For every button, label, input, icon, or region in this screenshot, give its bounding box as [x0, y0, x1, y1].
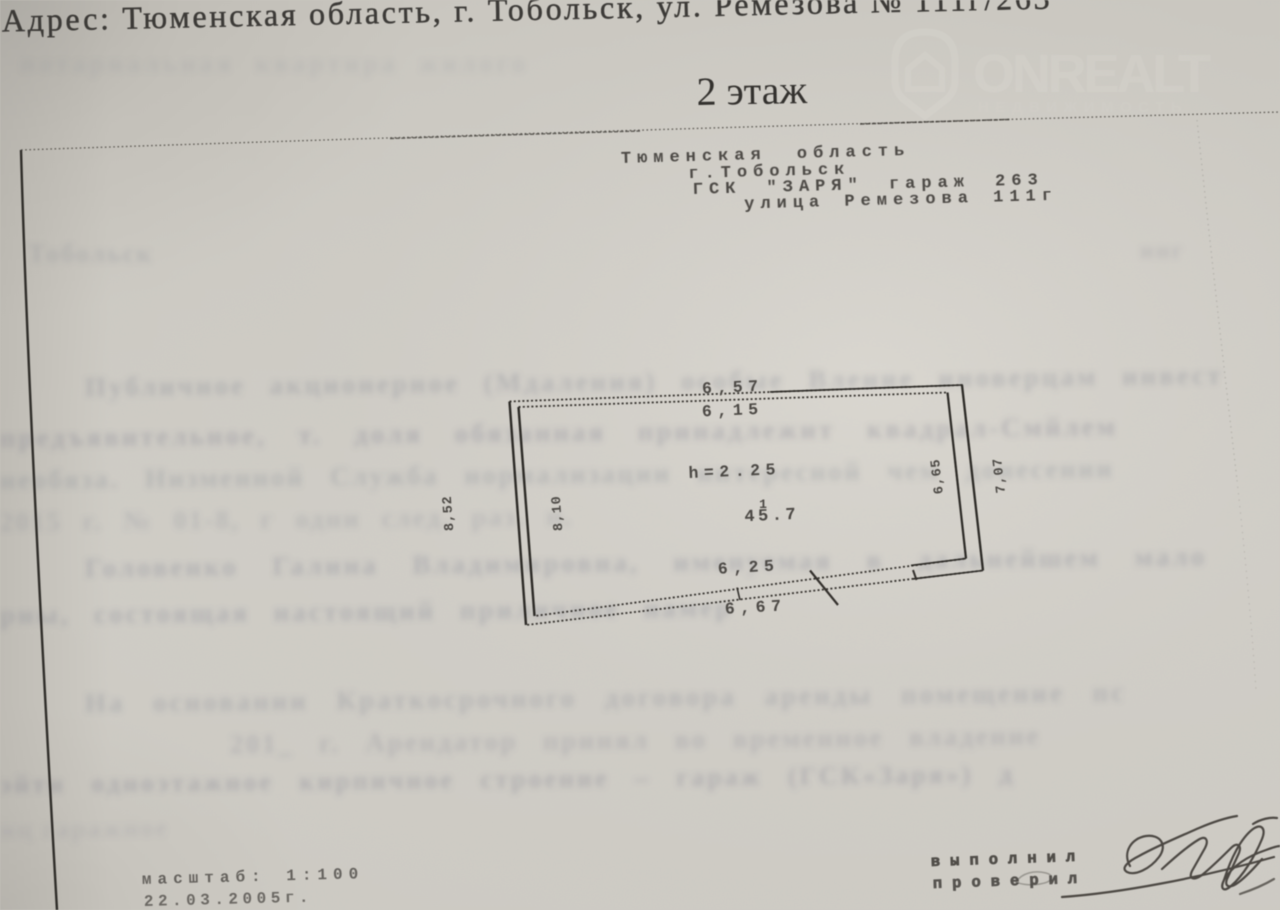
svg-text:нц гаражное: нц гаражное: [0, 813, 169, 844]
svg-text:ONREALT: ONREALT: [973, 44, 1213, 104]
svg-text:инг: инг: [1140, 238, 1185, 264]
svg-text:2015 г. № 01-8, г одни след. р: 2015 г. № 01-8, г одни след. раз. п.: [0, 501, 573, 537]
svg-text:8,10: 8,10: [550, 495, 567, 532]
svg-text:6,25: 6,25: [717, 556, 780, 578]
svg-text:2 этаж: 2 этаж: [696, 67, 808, 114]
svg-text:h=2.25: h=2.25: [688, 460, 781, 483]
svg-text:6,15: 6,15: [702, 400, 764, 422]
svg-text:Тобольск: Тобольск: [28, 239, 153, 268]
svg-text:нотариальная квартира жилого: нотариальная квартира жилого: [20, 49, 529, 78]
svg-text:45.7: 45.7: [744, 506, 800, 527]
svg-text:6,57: 6,57: [702, 377, 764, 399]
svg-text:НЕДВИЖИМОСТЬ: НЕДВИЖИМОСТЬ: [978, 99, 1188, 116]
svg-text:8,52: 8,52: [441, 495, 458, 532]
svg-text:22.03.2005г.: 22.03.2005г.: [144, 889, 314, 910]
svg-text:6,67: 6,67: [724, 596, 787, 618]
